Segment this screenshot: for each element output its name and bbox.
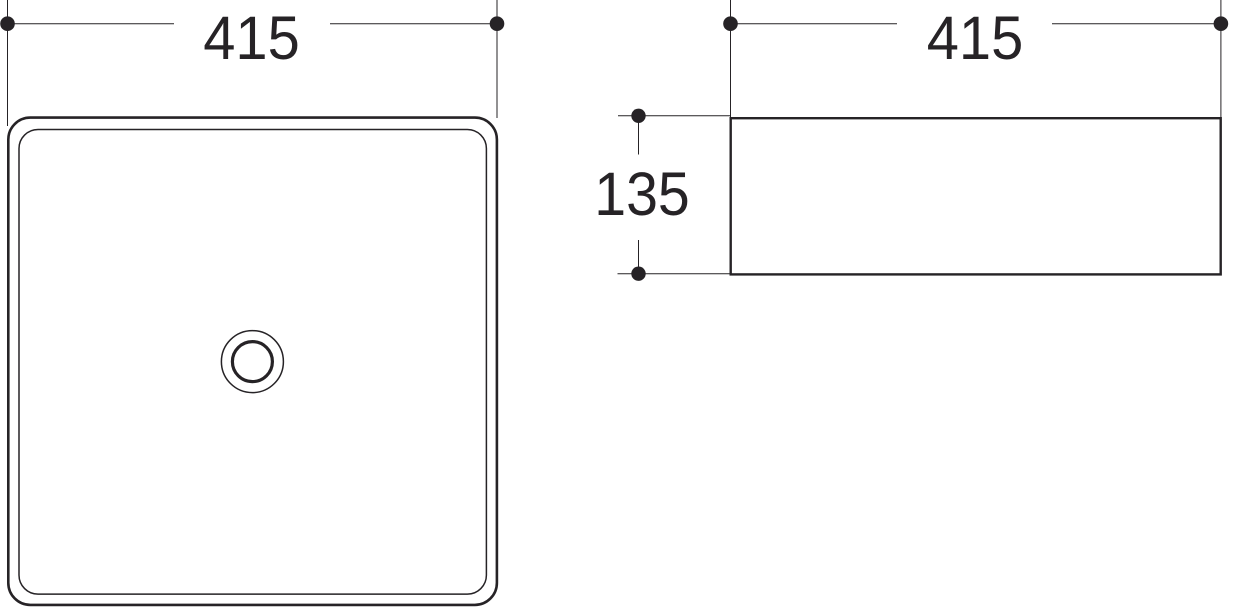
svg-text:415: 415 bbox=[927, 4, 1024, 72]
svg-text:135: 135 bbox=[594, 160, 690, 228]
svg-text:415: 415 bbox=[203, 4, 300, 72]
